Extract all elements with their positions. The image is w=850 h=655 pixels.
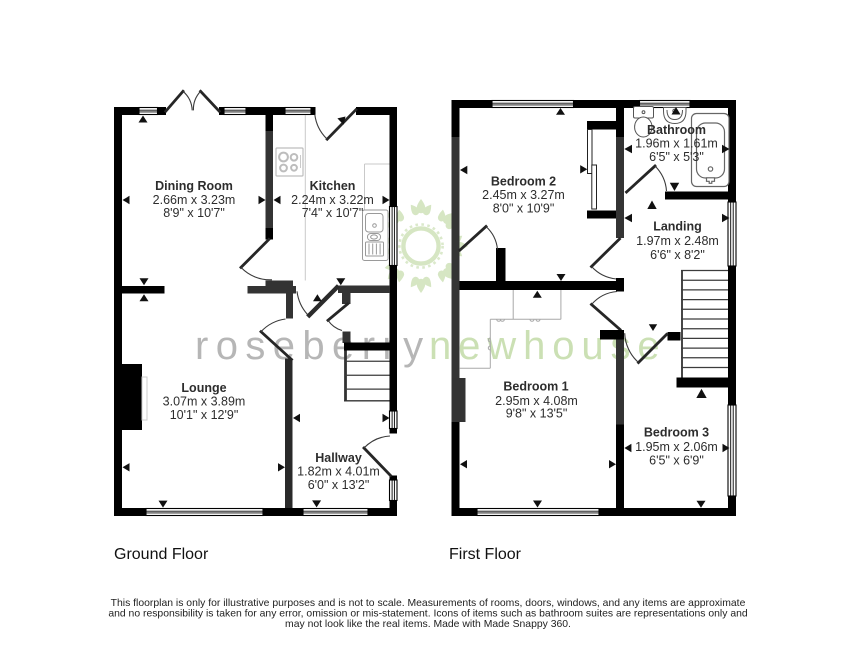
svg-text:Lounge: Lounge — [181, 381, 226, 395]
svg-text:Bathroom: Bathroom — [647, 123, 706, 137]
svg-text:6'5" x 5'3": 6'5" x 5'3" — [649, 150, 704, 164]
svg-text:Ground Floor: Ground Floor — [114, 546, 209, 563]
svg-text:7'4" x 10'7": 7'4" x 10'7" — [302, 206, 364, 220]
svg-text:8'9" x 10'7": 8'9" x 10'7" — [163, 206, 225, 220]
svg-text:6'6" x 8'2": 6'6" x 8'2" — [650, 248, 705, 262]
svg-text:1.95m x 2.06m: 1.95m x 2.06m — [635, 440, 718, 454]
svg-text:Landing: Landing — [653, 220, 702, 234]
svg-text:Bedroom 2: Bedroom 2 — [491, 175, 556, 189]
svg-text:8'0" x 10'9": 8'0" x 10'9" — [493, 202, 555, 216]
svg-text:1.97m x 2.48m: 1.97m x 2.48m — [636, 234, 719, 248]
svg-text:10'1" x 12'9": 10'1" x 12'9" — [170, 408, 239, 422]
svg-text:6'5" x 6'9": 6'5" x 6'9" — [649, 454, 704, 468]
svg-text:Bedroom 1: Bedroom 1 — [503, 380, 568, 394]
svg-text:and no responsibility is taken: and no responsibility is taken for any e… — [108, 609, 748, 620]
svg-text:9'8" x 13'5": 9'8" x 13'5" — [506, 407, 568, 421]
svg-text:Hallway: Hallway — [315, 451, 362, 465]
svg-text:newhouse: newhouse — [429, 324, 667, 368]
svg-text:6'0" x 13'2": 6'0" x 13'2" — [308, 478, 370, 492]
svg-text:This floorplan is only for ill: This floorplan is only for illustrative … — [111, 598, 746, 609]
svg-text:Kitchen: Kitchen — [310, 179, 356, 193]
svg-text:Dining Room: Dining Room — [155, 179, 233, 193]
svg-text:2.66m x 3.23m: 2.66m x 3.23m — [153, 193, 236, 207]
svg-text:2.24m x 3.22m: 2.24m x 3.22m — [291, 193, 374, 207]
svg-text:3.07m x 3.89m: 3.07m x 3.89m — [163, 395, 246, 409]
svg-text:First Floor: First Floor — [449, 546, 522, 563]
svg-text:Bedroom 3: Bedroom 3 — [644, 426, 709, 440]
svg-text:2.45m x 3.27m: 2.45m x 3.27m — [482, 188, 565, 202]
svg-text:may not look like the real ite: may not look like the real items. Made w… — [285, 619, 571, 630]
svg-text:1.96m x 1.61m: 1.96m x 1.61m — [635, 137, 718, 151]
svg-text:1.82m x 4.01m: 1.82m x 4.01m — [297, 465, 380, 479]
